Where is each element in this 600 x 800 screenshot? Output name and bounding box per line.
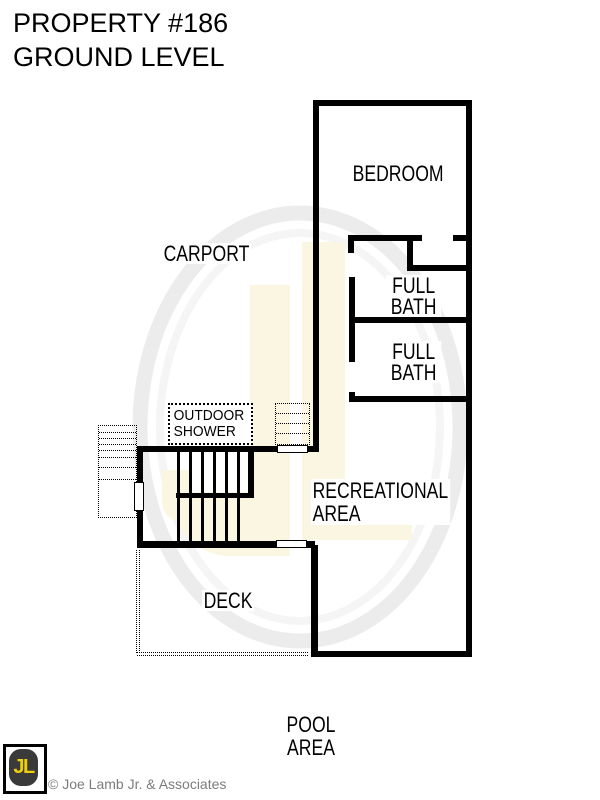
room-label-full-bath-lower: FULL BATH xyxy=(386,341,441,383)
wall-exterior-left-upper xyxy=(313,100,319,452)
stair-tread-dotted xyxy=(99,444,136,445)
outdoor-shower-box: OUTDOOR SHOWER xyxy=(168,403,253,445)
wall-stairwell-top-connector xyxy=(308,446,315,452)
room-label-recreational-area: RECREATIONAL AREA xyxy=(311,479,450,525)
stair-tread-dotted xyxy=(99,450,136,451)
wall-exterior-left-lower xyxy=(311,545,318,657)
room-label-full-bath-upper: FULL BATH xyxy=(386,275,441,317)
window-marker-stairwell-bottom xyxy=(276,540,307,548)
page-title-line1: PROPERTY #186 xyxy=(13,6,228,40)
watermark-letter-j-stem xyxy=(250,285,290,495)
stair-tread-dotted xyxy=(276,433,309,434)
wall-stairwell-bottom xyxy=(137,541,277,548)
room-label-deck: DECK xyxy=(202,590,254,611)
stair-tread-dotted xyxy=(276,413,309,414)
page-title: PROPERTY #186 GROUND LEVEL xyxy=(13,6,228,74)
room-label-outdoor-shower: OUTDOOR SHOWER xyxy=(170,405,244,440)
joe-lamb-logo-letters: JL xyxy=(13,756,33,779)
interior-stairs-end-wall xyxy=(248,451,254,498)
wall-closet-bottom xyxy=(407,265,472,271)
wall-bedroom-bottom-right xyxy=(453,235,466,241)
wall-bath-lower-bottom xyxy=(349,396,472,402)
joe-lamb-logo: JL xyxy=(3,744,47,794)
stair-tread-dotted xyxy=(276,423,309,424)
watermark-ring xyxy=(0,0,600,800)
wall-closet-vertical xyxy=(407,240,413,267)
stair-tread-dotted xyxy=(99,432,136,433)
joe-lamb-logo-pill: JL xyxy=(9,749,38,786)
wall-exterior-top xyxy=(313,100,472,106)
deck-edge-bottom xyxy=(137,652,308,656)
stair-tread-dotted xyxy=(99,457,136,458)
stair-tread-dotted xyxy=(99,479,136,480)
copyright-text: © Joe Lamb Jr. & Associates xyxy=(48,776,226,792)
area-label-pool: POOL AREA xyxy=(283,713,339,759)
interior-stairs-lower-flight xyxy=(177,498,243,541)
wall-exterior-bottom xyxy=(313,651,472,657)
exterior-stairs-left xyxy=(98,425,137,518)
wall-exterior-right xyxy=(466,100,472,657)
stair-tread-dotted xyxy=(99,438,136,439)
exterior-stairs-right xyxy=(275,403,310,445)
wall-bedroom-bottom-nub xyxy=(348,235,354,253)
interior-stairs-upper-flight xyxy=(177,452,251,493)
floorplan-page: PROPERTY #186 GROUND LEVEL xyxy=(0,0,600,800)
window-marker-stairwell-top xyxy=(277,445,308,453)
window-marker-stairwell-left xyxy=(134,482,144,511)
page-title-line2: GROUND LEVEL xyxy=(13,40,228,74)
room-label-carport: CARPORT xyxy=(162,243,251,264)
wall-stairwell-top xyxy=(137,446,278,452)
room-label-bedroom: BEDROOM xyxy=(351,163,445,184)
interior-stairs-mid-rail xyxy=(176,493,254,498)
deck-edge-left xyxy=(136,550,140,653)
stair-tread-dotted xyxy=(99,467,136,468)
wall-stairwell-bottom-connector xyxy=(307,541,315,548)
